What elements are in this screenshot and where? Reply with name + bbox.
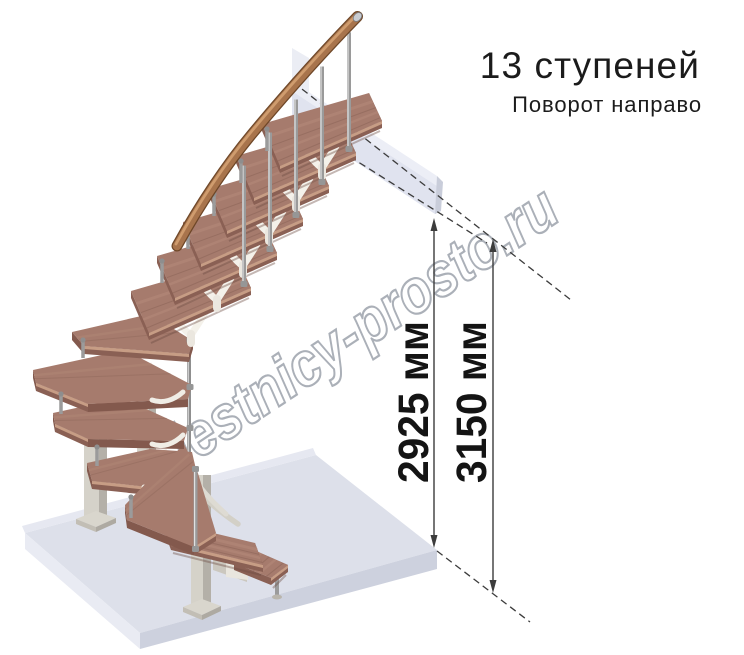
svg-text:Поворот направо: Поворот направо <box>512 92 702 117</box>
svg-text:2925 мм: 2925 мм <box>390 321 438 483</box>
svg-text:13 ступеней: 13 ступеней <box>480 45 700 86</box>
svg-text:3150 мм: 3150 мм <box>448 321 496 483</box>
